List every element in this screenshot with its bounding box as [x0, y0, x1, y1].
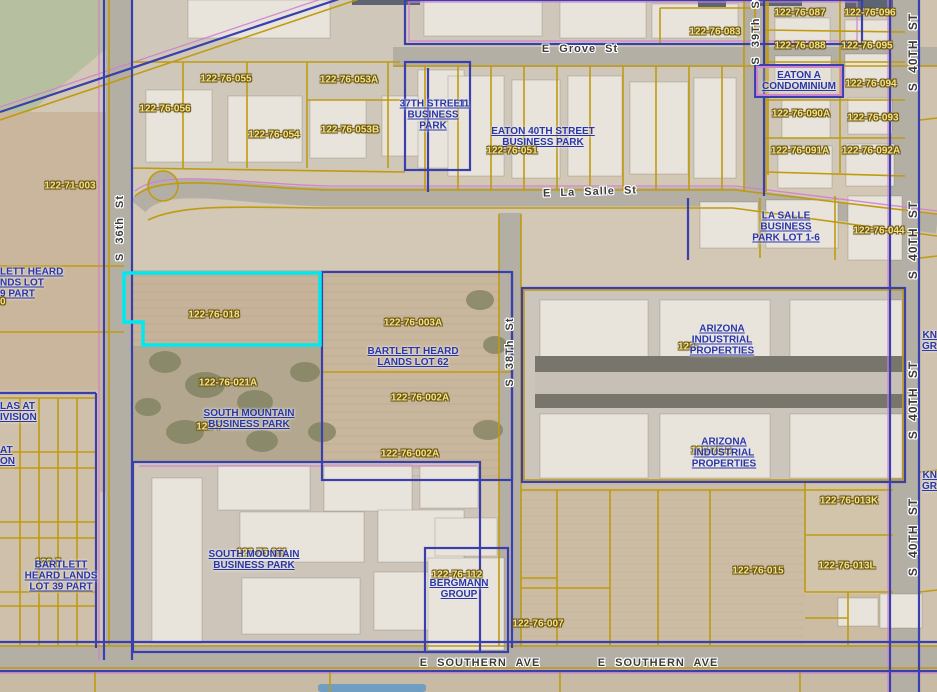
aerial-imagery-layer — [0, 0, 937, 692]
parcel-map-viewport[interactable]: 122-71-003 122-76-056 122-76-055 122-76-… — [0, 0, 937, 692]
road-36th — [106, 0, 132, 660]
